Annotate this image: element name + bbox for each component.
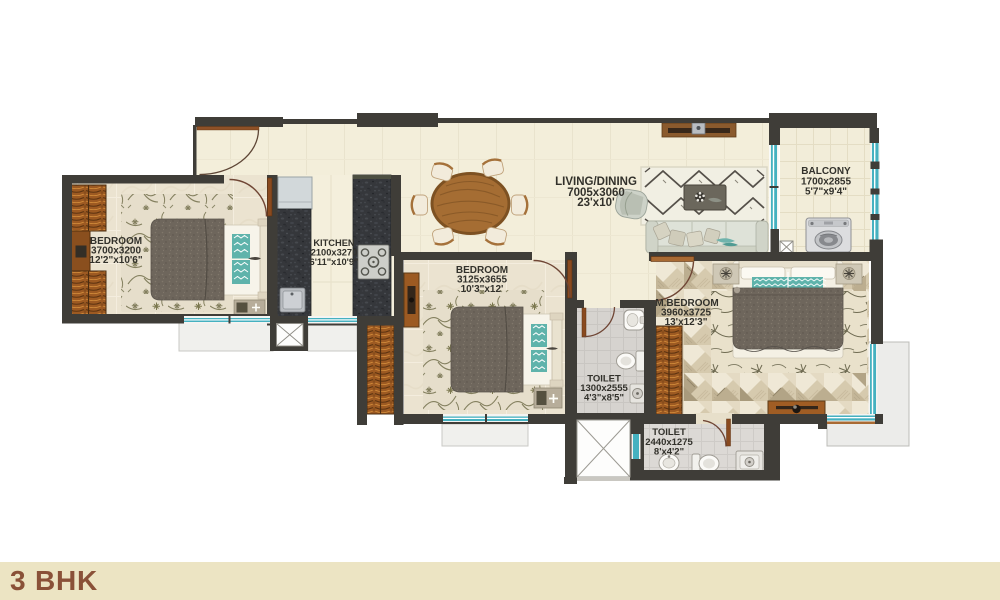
svg-text:2100x3270: 2100x3270 [311,248,358,258]
svg-text:KITCHEN: KITCHEN [313,238,355,248]
svg-text:10'3"x12': 10'3"x12' [461,284,504,295]
svg-text:12'2"x10'6": 12'2"x10'6" [89,255,142,266]
svg-text:8'x4'2": 8'x4'2" [654,447,684,458]
svg-text:23'x10': 23'x10' [577,197,615,209]
svg-text:BALCONY: BALCONY [801,166,851,177]
svg-text:6'11"x10'9": 6'11"x10'9" [310,257,359,267]
svg-text:3 BHK: 3 BHK [10,565,98,596]
svg-text:4'3"x8'5": 4'3"x8'5" [584,393,624,404]
svg-text:5'7"x9'4": 5'7"x9'4" [805,187,847,198]
svg-text:13'x12'3": 13'x12'3" [665,317,708,328]
